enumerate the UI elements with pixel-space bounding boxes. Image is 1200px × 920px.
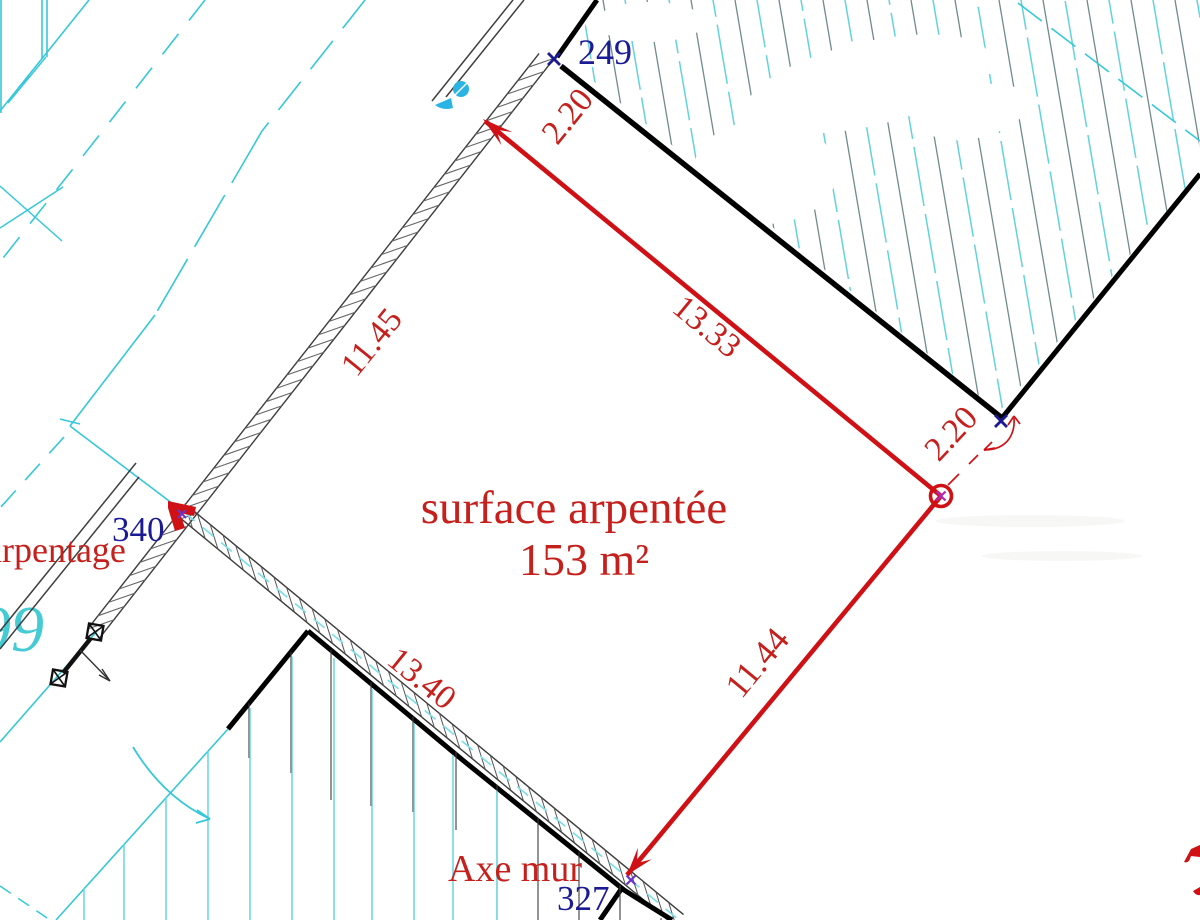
svg-text:327: 327 xyxy=(557,879,610,918)
svg-text:340: 340 xyxy=(112,510,165,549)
svg-text:surface arpentée: surface arpentée xyxy=(421,482,728,534)
svg-text:arpentage: arpentage xyxy=(0,530,126,570)
svg-text:153 m²: 153 m² xyxy=(519,534,649,585)
svg-text:249: 249 xyxy=(578,32,632,72)
